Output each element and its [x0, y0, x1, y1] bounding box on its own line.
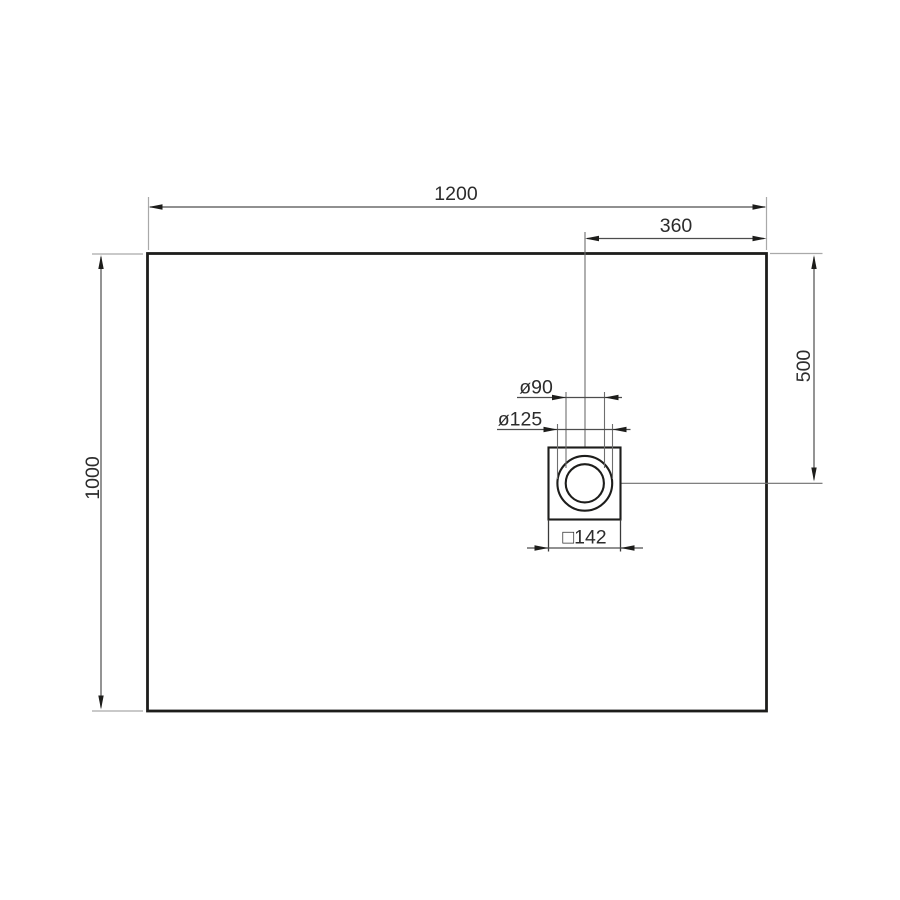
dimension-label-142: □142: [562, 527, 606, 549]
arrowhead-down: [98, 696, 103, 710]
arrowhead-up: [98, 255, 103, 269]
arrowhead-down: [811, 468, 816, 482]
dimension-label-1000: 1000: [82, 456, 104, 500]
dimension-label-360: 360: [660, 215, 693, 237]
drain: [549, 448, 621, 520]
dim-drain-square: □142: [527, 520, 643, 552]
arrowhead-left: [552, 395, 566, 400]
arrowhead-right: [613, 427, 627, 432]
technical-drawing: 1200 360 1000 500: [0, 0, 900, 900]
arrowhead-left: [535, 545, 549, 550]
arrowhead-right: [753, 204, 767, 209]
dimension-label-o125: ø125: [498, 409, 543, 431]
arrowhead-left: [585, 236, 599, 241]
dimension-label-o90: ø90: [519, 377, 553, 399]
drawing-svg: 1200 360 1000 500: [0, 0, 900, 900]
drain-inner-circle: [566, 464, 604, 502]
dim-overall-depth: 1000: [82, 254, 143, 711]
arrowhead-right: [621, 545, 635, 550]
arrowhead-left: [149, 204, 163, 209]
dim-drain-offset-right: 360: [585, 215, 767, 241]
arrowhead-right: [605, 395, 619, 400]
dim-drain-offset-top: 500: [770, 254, 823, 482]
arrowhead-up: [811, 255, 816, 269]
dimension-label-500: 500: [793, 350, 815, 383]
dimension-label-1200: 1200: [434, 183, 478, 205]
arrowhead-right: [753, 236, 767, 241]
tray-outline: [148, 254, 767, 712]
arrowhead-left: [544, 427, 558, 432]
